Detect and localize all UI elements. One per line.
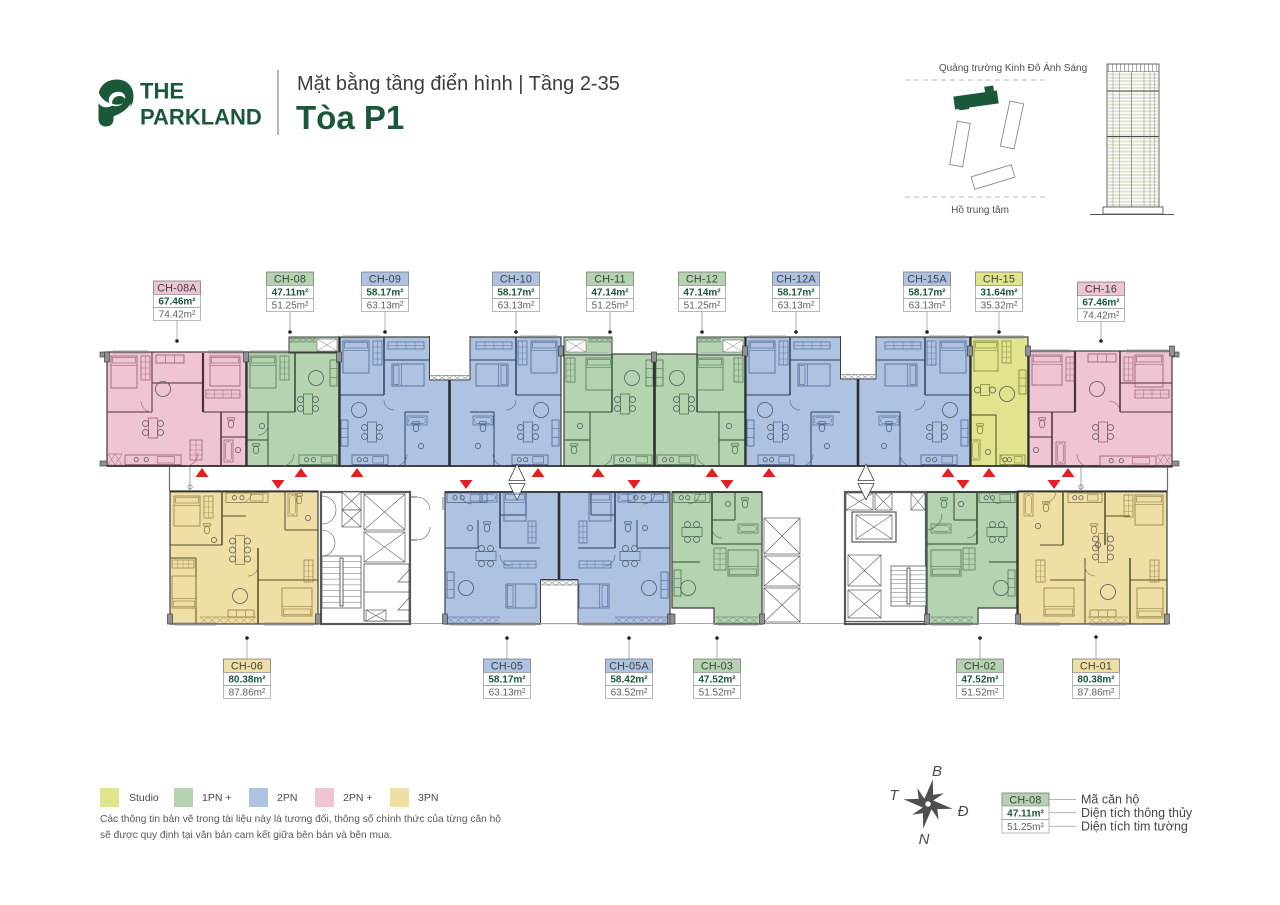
svg-text:Diện tích thông thủy: Diện tích thông thủy: [1081, 806, 1193, 820]
svg-text:51.25m²: 51.25m²: [592, 300, 629, 311]
svg-text:58.17m²: 58.17m²: [488, 675, 526, 686]
svg-text:80.38m²: 80.38m²: [1077, 675, 1115, 686]
svg-text:2PN +: 2PN +: [343, 792, 372, 804]
svg-text:3PN: 3PN: [418, 792, 438, 804]
svg-text:Các thông tin bản vẽ trong tài: Các thông tin bản vẽ trong tài liệu này …: [100, 813, 501, 825]
svg-text:CH-06: CH-06: [231, 661, 263, 673]
svg-text:63.13m²: 63.13m²: [778, 300, 815, 311]
svg-text:63.13m²: 63.13m²: [909, 300, 946, 311]
svg-text:51.25m²: 51.25m²: [272, 300, 309, 311]
svg-text:2PN: 2PN: [277, 792, 297, 804]
svg-text:CH-03: CH-03: [701, 661, 733, 673]
svg-text:PARKLAND: PARKLAND: [140, 105, 262, 130]
svg-text:67.46m²: 67.46m²: [158, 297, 196, 308]
svg-text:Quảng trường Kinh Đô Ánh Sáng: Quảng trường Kinh Đô Ánh Sáng: [939, 61, 1087, 74]
svg-text:63.13m²: 63.13m²: [489, 687, 526, 698]
svg-text:N: N: [919, 831, 930, 848]
svg-text:Hồ trung tâm: Hồ trung tâm: [951, 204, 1009, 216]
svg-text:51.52m²: 51.52m²: [962, 687, 999, 698]
svg-text:31.64m²: 31.64m²: [980, 288, 1018, 299]
svg-text:63.52m²: 63.52m²: [611, 687, 648, 698]
svg-text:Đ: Đ: [958, 803, 969, 820]
svg-text:74.42m²: 74.42m²: [1083, 310, 1120, 321]
svg-text:Mã căn hộ: Mã căn hộ: [1081, 793, 1139, 807]
svg-text:63.13m²: 63.13m²: [367, 300, 404, 311]
svg-text:51.52m²: 51.52m²: [699, 687, 736, 698]
svg-text:CH-08A: CH-08A: [157, 283, 197, 295]
svg-text:CH-08: CH-08: [1009, 795, 1041, 807]
svg-text:51.25m²: 51.25m²: [684, 300, 721, 311]
svg-text:THE: THE: [140, 79, 184, 104]
svg-text:47.14m²: 47.14m²: [591, 288, 629, 299]
svg-text:35.32m²: 35.32m²: [981, 300, 1018, 311]
svg-text:47.11m²: 47.11m²: [272, 288, 309, 299]
svg-text:47.11m²: 47.11m²: [1007, 809, 1044, 820]
svg-text:B: B: [932, 763, 942, 780]
svg-text:CH-10: CH-10: [500, 274, 532, 286]
svg-text:87.86m²: 87.86m²: [229, 687, 266, 698]
svg-text:58.17m²: 58.17m²: [366, 288, 404, 299]
svg-text:58.17m²: 58.17m²: [908, 288, 946, 299]
svg-text:CH-02: CH-02: [964, 661, 996, 673]
svg-text:CH-12: CH-12: [686, 274, 718, 286]
svg-text:Mặt bằng tầng điển hình | Tầng: Mặt bằng tầng điển hình | Tầng 2-35: [297, 72, 620, 95]
svg-text:CH-08: CH-08: [274, 274, 306, 286]
svg-text:CH-05: CH-05: [491, 661, 523, 673]
svg-text:58.42m²: 58.42m²: [610, 675, 648, 686]
svg-text:51.25m²: 51.25m²: [1007, 822, 1044, 833]
svg-text:Tòa P1: Tòa P1: [296, 99, 404, 136]
svg-text:47.52m²: 47.52m²: [698, 675, 736, 686]
svg-text:47.14m²: 47.14m²: [683, 288, 721, 299]
svg-text:CH-11: CH-11: [594, 274, 625, 286]
svg-text:CH-15: CH-15: [983, 274, 1015, 286]
svg-text:1PN +: 1PN +: [202, 792, 231, 804]
svg-text:Diện tích tim tường: Diện tích tim tường: [1081, 820, 1188, 834]
svg-text:CH-12A: CH-12A: [776, 274, 816, 286]
svg-text:CH-15A: CH-15A: [907, 274, 947, 286]
svg-text:58.17m²: 58.17m²: [497, 288, 535, 299]
svg-text:CH-05A: CH-05A: [609, 661, 649, 673]
svg-text:Studio: Studio: [129, 792, 159, 804]
svg-text:63.13m²: 63.13m²: [498, 300, 535, 311]
svg-text:CH-09: CH-09: [369, 274, 401, 286]
svg-text:sẽ được quy định tại văn bản c: sẽ được quy định tại văn bản cam kết giữ…: [100, 829, 392, 841]
svg-text:CH-01: CH-01: [1080, 661, 1112, 673]
svg-text:CH-16: CH-16: [1085, 284, 1117, 296]
svg-text:47.52m²: 47.52m²: [961, 675, 999, 686]
svg-text:87.86m²: 87.86m²: [1078, 687, 1115, 698]
svg-text:80.38m²: 80.38m²: [228, 675, 266, 686]
svg-text:58.17m²: 58.17m²: [777, 288, 815, 299]
svg-text:74.42m²: 74.42m²: [159, 309, 196, 320]
svg-text:67.46m²: 67.46m²: [1082, 298, 1120, 309]
